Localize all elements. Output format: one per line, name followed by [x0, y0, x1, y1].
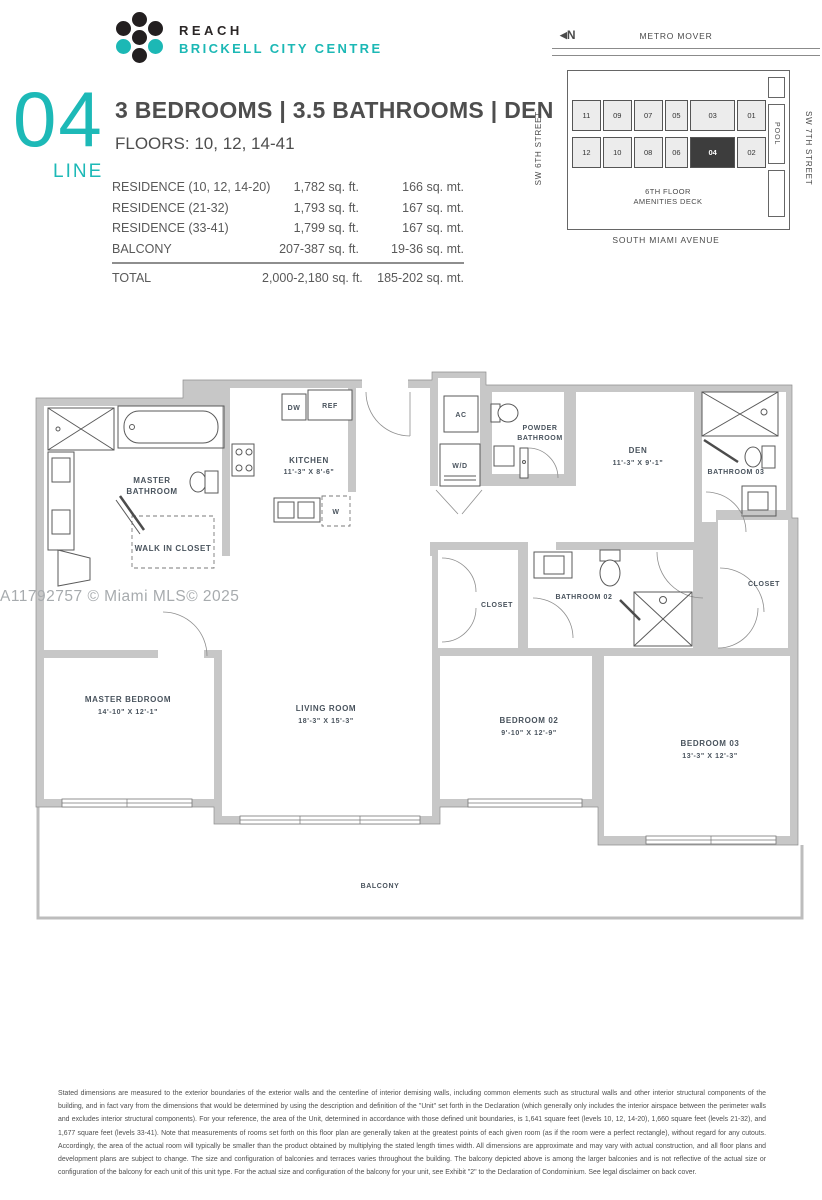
appliance-label-dw: DW	[288, 405, 301, 412]
row-sqmt: 167 sq. mt.	[359, 221, 464, 235]
deck-block	[768, 170, 785, 217]
appliance-label-ac: AC	[455, 412, 466, 419]
appliance-label-w: W	[332, 509, 339, 516]
room-label-balcony: BALCONY	[361, 883, 400, 890]
brand-line-1: REACH	[179, 24, 383, 37]
row-sqft: 207-387 sq. ft.	[262, 242, 359, 256]
unit-cell-02: 02	[737, 137, 766, 168]
closet-wall	[518, 550, 528, 648]
key-plan-outline: 11 09 07 05 03 01 12 10 08 06 04 02 POOL…	[567, 70, 790, 230]
room-label-master-bedroom: MASTER BEDROOM	[85, 695, 171, 704]
room-dims-den: 11'-3" X 9'-1"	[613, 460, 664, 467]
amenities-line-2: AMENITIES DECK	[568, 197, 768, 207]
row-sqft: 1,799 sq. ft.	[262, 221, 359, 235]
window	[62, 799, 192, 807]
logo-dot	[116, 39, 131, 54]
window	[646, 836, 776, 844]
floors-subtitle: FLOORS: 10, 12, 14-41	[115, 134, 295, 154]
unit-cell-12: 12	[572, 137, 601, 168]
unit-cell-10: 10	[603, 137, 632, 168]
room-label-powder-2: BATHROOM	[517, 435, 563, 442]
unit-cell-01: 01	[737, 100, 766, 131]
room-label-bedroom-02: BEDROOM 02	[500, 716, 559, 725]
powder-toilet	[491, 404, 518, 422]
appliance-label-wd: W/D	[452, 463, 467, 470]
room-dims-living-room: 18'-3" X 15'-3"	[298, 718, 354, 725]
total-sqft: 2,000-2,180 sq. ft.	[262, 271, 359, 285]
unit-row-top: 11 09 07 05 03 01	[572, 100, 766, 131]
room-label-walk-in-closet: WALK IN CLOSET	[135, 544, 212, 553]
unit-line-number: 04	[13, 80, 104, 158]
amenities-label: 6TH FLOOR AMENITIES DECK	[568, 187, 768, 207]
unit-line-label: LINE	[53, 161, 103, 183]
room-dims-bedroom-02: 9'-10" X 12'-9"	[501, 730, 557, 737]
unit-cell-09: 09	[603, 100, 632, 131]
unit-cell-05: 05	[665, 100, 689, 131]
deck-block	[768, 77, 785, 98]
table-row: BALCONY 207-387 sq. ft. 19-36 sq. mt.	[112, 242, 464, 256]
total-label: TOTAL	[112, 271, 262, 285]
row-label: BALCONY	[112, 242, 262, 256]
pool-block: POOL	[768, 104, 785, 164]
row-label: RESIDENCE (21-32)	[112, 201, 262, 215]
unit-cell-04-highlighted: 04	[690, 137, 735, 168]
window	[468, 799, 582, 807]
mls-watermark: A11792757 © Miami MLS© 2025	[0, 588, 239, 606]
bath2-toilet	[600, 550, 620, 586]
legal-disclaimer: Stated dimensions are measured to the ex…	[58, 1087, 766, 1179]
brand-logo-icon	[116, 11, 164, 64]
table-total-row: TOTAL 2,000-2,180 sq. ft. 185-202 sq. mt…	[112, 271, 464, 285]
table-row: RESIDENCE (33-41) 1,799 sq. ft. 167 sq. …	[112, 221, 464, 235]
area-table: RESIDENCE (10, 12, 14-20) 1,782 sq. ft. …	[112, 180, 464, 292]
table-divider	[112, 262, 464, 264]
metro-track-line	[552, 55, 820, 56]
unit-cell-07: 07	[634, 100, 663, 131]
amenities-line-1: 6TH FLOOR	[568, 187, 768, 197]
row-sqmt: 166 sq. mt.	[359, 180, 464, 194]
logo-dot	[132, 12, 147, 27]
pool-label: POOL	[773, 122, 780, 145]
logo-dot	[148, 39, 163, 54]
unit-cell-08: 08	[634, 137, 663, 168]
unit-cell-06: 06	[665, 137, 689, 168]
street-label-right: SW 7TH STREET	[804, 111, 813, 185]
room-fills	[44, 376, 790, 836]
room-label-living-room: LIVING ROOM	[296, 704, 356, 713]
logo-dot	[116, 21, 131, 36]
row-label: RESIDENCE (10, 12, 14-20)	[112, 180, 262, 194]
logo-dot	[132, 48, 147, 63]
table-row: RESIDENCE (21-32) 1,793 sq. ft. 167 sq. …	[112, 201, 464, 215]
room-label-kitchen: KITCHEN	[289, 456, 329, 465]
floor-plan: MASTER BATHROOM WALK IN CLOSET KITCHEN 1…	[0, 365, 822, 935]
room-dims-bedroom-03: 13'-3" X 12'-3"	[682, 753, 738, 760]
logo-dot	[148, 21, 163, 36]
unit-cell-03: 03	[690, 100, 735, 131]
row-sqmt: 19-36 sq. mt.	[359, 242, 464, 256]
appliance-label-ref: REF	[322, 403, 338, 410]
metro-mover-label: METRO MOVER	[530, 31, 822, 41]
row-sqft: 1,782 sq. ft.	[262, 180, 359, 194]
window	[240, 816, 420, 824]
total-sqmt: 185-202 sq. mt.	[359, 271, 464, 285]
room-label-den: DEN	[629, 446, 648, 455]
building-key-plan: ◀N METRO MOVER SW 6TH STREET SW 7TH STRE…	[530, 25, 822, 265]
room-label-bathroom-03: BATHROOM 03	[707, 469, 764, 476]
room-label-master-bathroom-2: BATHROOM	[126, 487, 177, 496]
room-label-closet-right: CLOSET	[748, 581, 780, 588]
page-title: 3 BEDROOMS | 3.5 BATHROOMS | DEN	[115, 97, 554, 124]
table-row: RESIDENCE (10, 12, 14-20) 1,782 sq. ft. …	[112, 180, 464, 194]
room-label-powder: POWDER	[522, 425, 557, 432]
street-label-left: SW 6TH STREET	[534, 111, 543, 185]
room-label-closet-middle: CLOSET	[481, 602, 513, 609]
row-label: RESIDENCE (33-41)	[112, 221, 262, 235]
room-label-bathroom-02: BATHROOM 02	[555, 594, 612, 601]
avenue-label: SOUTH MIAMI AVENUE	[530, 235, 802, 245]
unit-cell-11: 11	[572, 100, 601, 131]
row-sqft: 1,793 sq. ft.	[262, 201, 359, 215]
brand-line-2: BRICKELL CITY CENTRE	[179, 42, 383, 55]
room-label-master-bathroom: MASTER	[133, 476, 170, 485]
brand-name: REACH BRICKELL CITY CENTRE	[179, 24, 383, 55]
room-dims-master-bedroom: 14'-10" X 12'-1"	[98, 709, 158, 716]
room-label-bedroom-03: BEDROOM 03	[681, 739, 740, 748]
unit-row-bottom: 12 10 08 06 04 02	[572, 137, 766, 168]
logo-dot	[132, 30, 147, 45]
floorplan-brochure-page: REACH BRICKELL CITY CENTRE 04 LINE 3 BED…	[0, 0, 822, 1200]
metro-track-line	[552, 48, 820, 49]
room-dims-kitchen: 11'-3" X 8'-6"	[284, 469, 335, 476]
row-sqmt: 167 sq. mt.	[359, 201, 464, 215]
